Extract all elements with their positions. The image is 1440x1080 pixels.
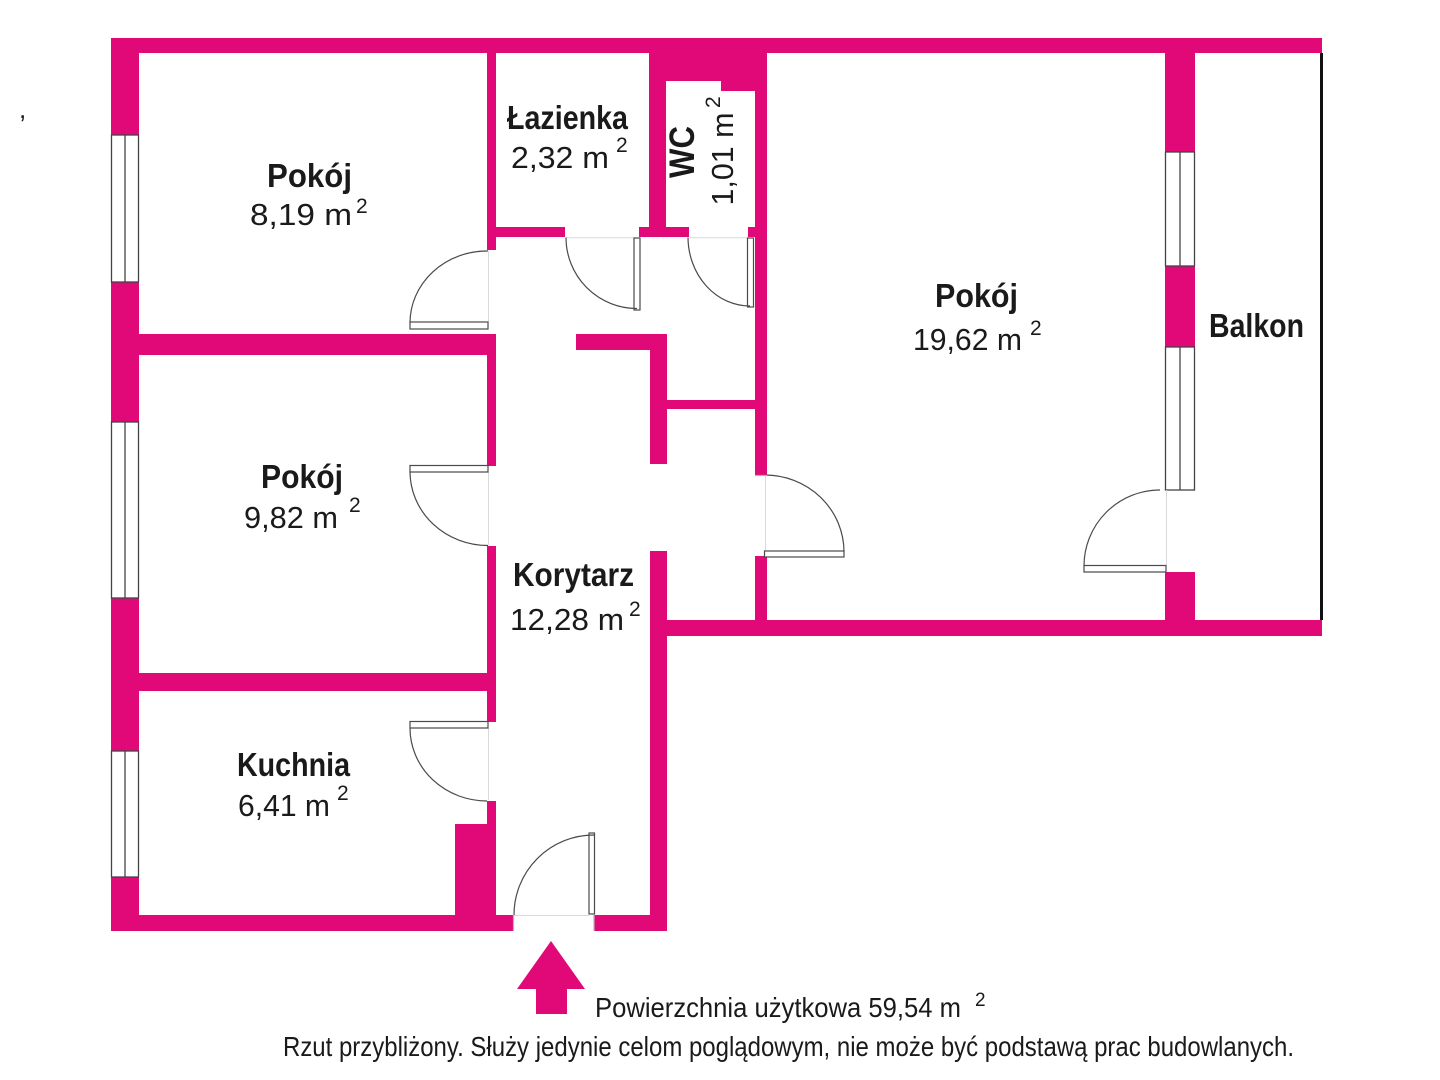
svg-text:Korytarz: Korytarz [513,556,634,593]
svg-text:2: 2 [702,96,725,108]
svg-text:2: 2 [356,195,368,218]
svg-text:Pokój: Pokój [935,277,1018,314]
svg-text:2: 2 [629,598,641,621]
svg-text:WC: WC [663,126,702,178]
svg-text:Balkon: Balkon [1209,307,1304,344]
svg-text:Kuchnia: Kuchnia [237,746,351,783]
svg-text:2: 2 [1030,317,1042,340]
svg-text:2: 2 [337,782,349,805]
svg-text:8,19 m: 8,19 m [250,197,352,232]
svg-text:2: 2 [616,134,628,157]
svg-text:Łazienka: Łazienka [507,99,629,136]
svg-text:12,28 m: 12,28 m [510,602,624,637]
svg-text:2,32 m: 2,32 m [511,140,609,175]
svg-text:1,01 m: 1,01 m [705,113,740,206]
svg-text:Pokój: Pokój [261,458,343,495]
svg-text:,: , [19,94,26,124]
svg-text:2: 2 [975,990,986,1011]
svg-text:2: 2 [349,494,361,517]
svg-text:6,41 m: 6,41 m [238,788,330,823]
svg-text:Powierzchnia użytkowa 59,54 m: Powierzchnia użytkowa 59,54 m [595,992,961,1023]
svg-text:Rzut przybliżony. Służy jedyni: Rzut przybliżony. Służy jedynie celom po… [283,1031,1294,1062]
svg-text:Pokój: Pokój [267,157,352,194]
svg-text:9,82 m: 9,82 m [244,500,338,535]
svg-text:19,62 m: 19,62 m [913,322,1022,357]
